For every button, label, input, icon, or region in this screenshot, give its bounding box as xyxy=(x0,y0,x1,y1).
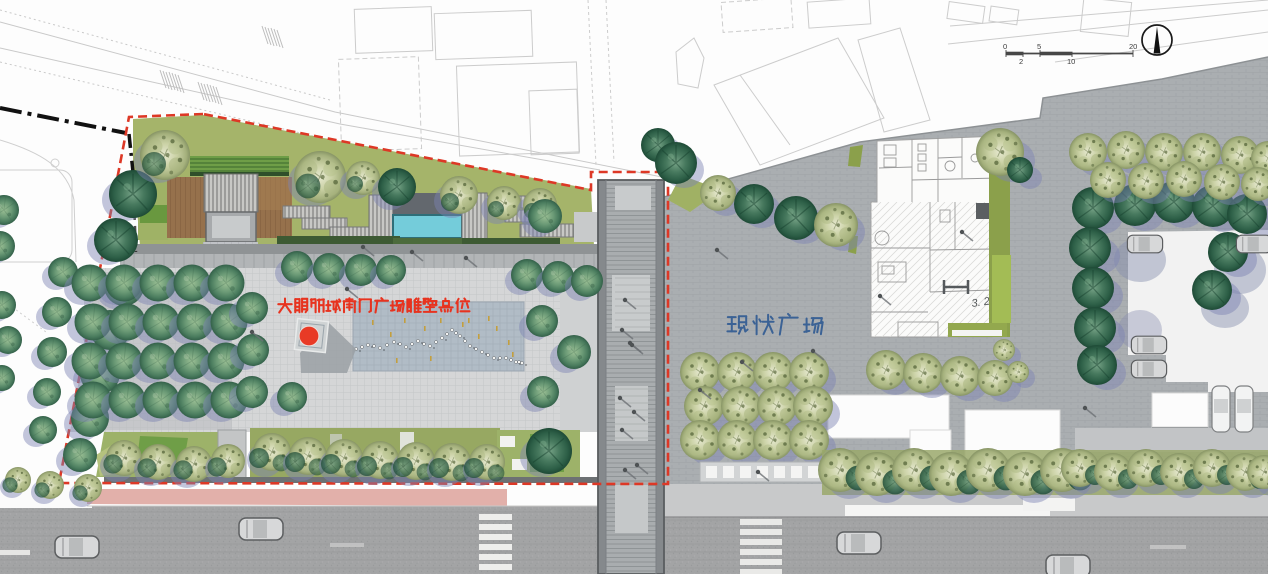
svg-text:2: 2 xyxy=(1019,57,1023,66)
svg-text:5: 5 xyxy=(1037,42,1041,51)
svg-text:0: 0 xyxy=(1003,42,1007,51)
svg-text:20: 20 xyxy=(1129,42,1137,51)
svg-text:10: 10 xyxy=(1067,57,1075,66)
svg-text:3. 2: 3. 2 xyxy=(971,296,991,310)
